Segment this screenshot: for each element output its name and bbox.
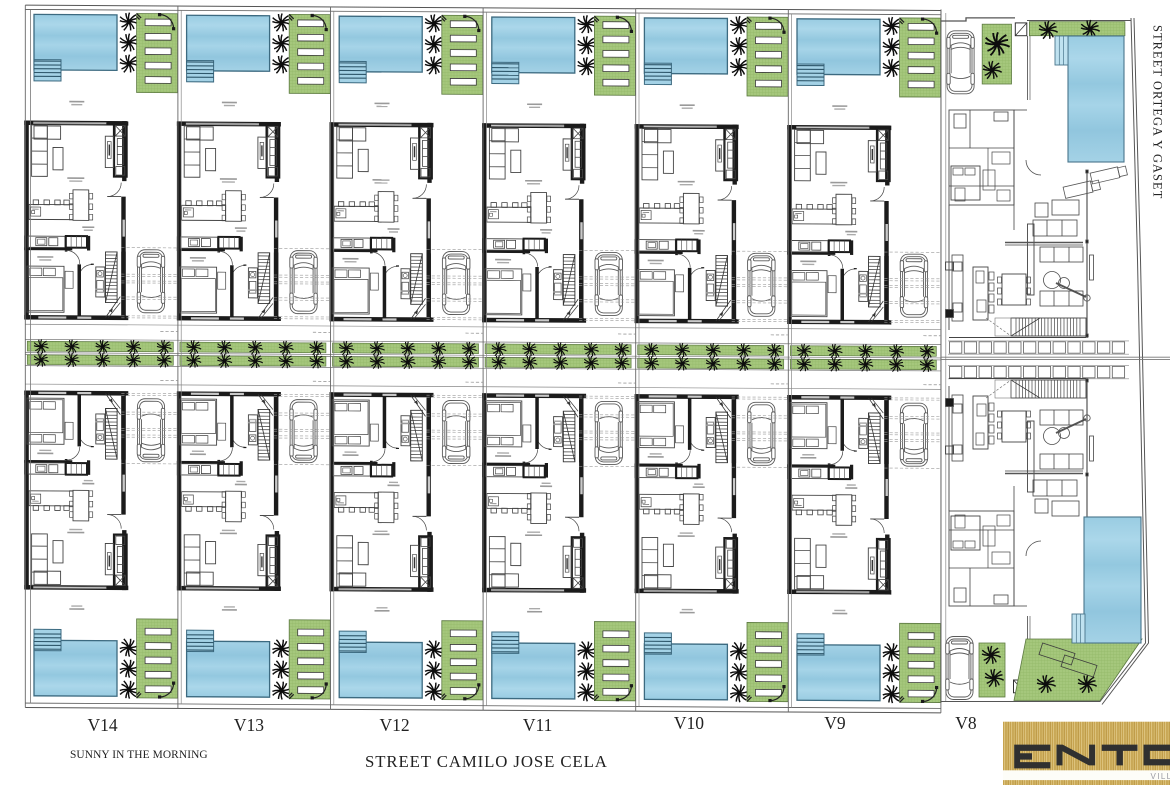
svg-text:V9: V9 (824, 713, 846, 733)
svg-text:V8: V8 (955, 713, 977, 733)
svg-text:STREET ORTEGA Y GASET: STREET ORTEGA Y GASET (1151, 25, 1165, 199)
svg-text:V13: V13 (234, 715, 264, 735)
svg-text:STREET CAMILO JOSE CELA: STREET CAMILO JOSE CELA (365, 752, 608, 771)
svg-text:V14: V14 (88, 715, 118, 735)
svg-text:V10: V10 (674, 713, 704, 733)
svg-text:SUNNY IN THE MORNING: SUNNY IN THE MORNING (70, 749, 208, 761)
svg-text:V12: V12 (380, 715, 410, 735)
svg-text:V11: V11 (523, 715, 553, 735)
svg-text:VILLAS: VILLAS (1150, 772, 1170, 781)
